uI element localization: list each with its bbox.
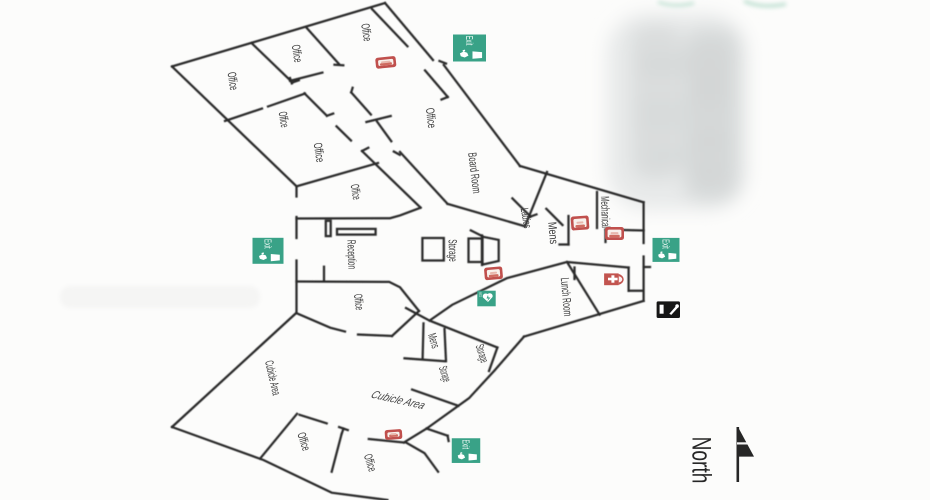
svg-text:Office: Office <box>350 293 366 311</box>
svg-text:Storage: Storage <box>445 239 460 262</box>
svg-text:Office: Office <box>275 111 291 129</box>
svg-text:Mechanical: Mechanical <box>597 196 612 228</box>
svg-text:Office: Office <box>422 107 437 129</box>
svg-text:Office: Office <box>358 23 374 43</box>
svg-text:Office: Office <box>288 44 304 64</box>
svg-text:North: North <box>687 437 717 484</box>
svg-text:Exit: Exit <box>262 239 273 249</box>
svg-text:Exit: Exit <box>463 36 474 46</box>
svg-text:Exit: Exit <box>460 439 471 449</box>
svg-text:AED: AED <box>478 292 483 297</box>
svg-text:Exit: Exit <box>660 239 671 249</box>
svg-text:Office: Office <box>224 71 240 91</box>
svg-text:Mens: Mens <box>545 221 560 244</box>
svg-text:Reception: Reception <box>344 240 359 270</box>
svg-text:Office: Office <box>347 183 363 201</box>
